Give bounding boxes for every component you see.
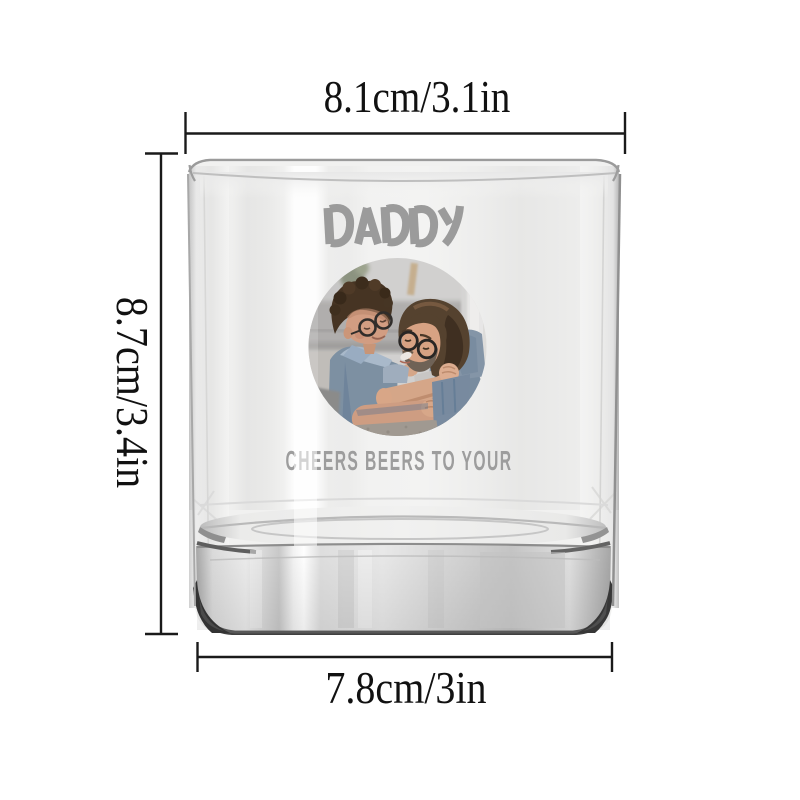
- svg-text:8.7cm/3.4in: 8.7cm/3.4in: [106, 297, 156, 488]
- svg-text:CHEERS BEERS TO YOUR: CHEERS BEERS TO YOUR: [286, 444, 513, 476]
- svg-text:7.8cm/3in: 7.8cm/3in: [325, 664, 486, 714]
- svg-text:8.1cm/3.1in: 8.1cm/3.1in: [324, 72, 511, 123]
